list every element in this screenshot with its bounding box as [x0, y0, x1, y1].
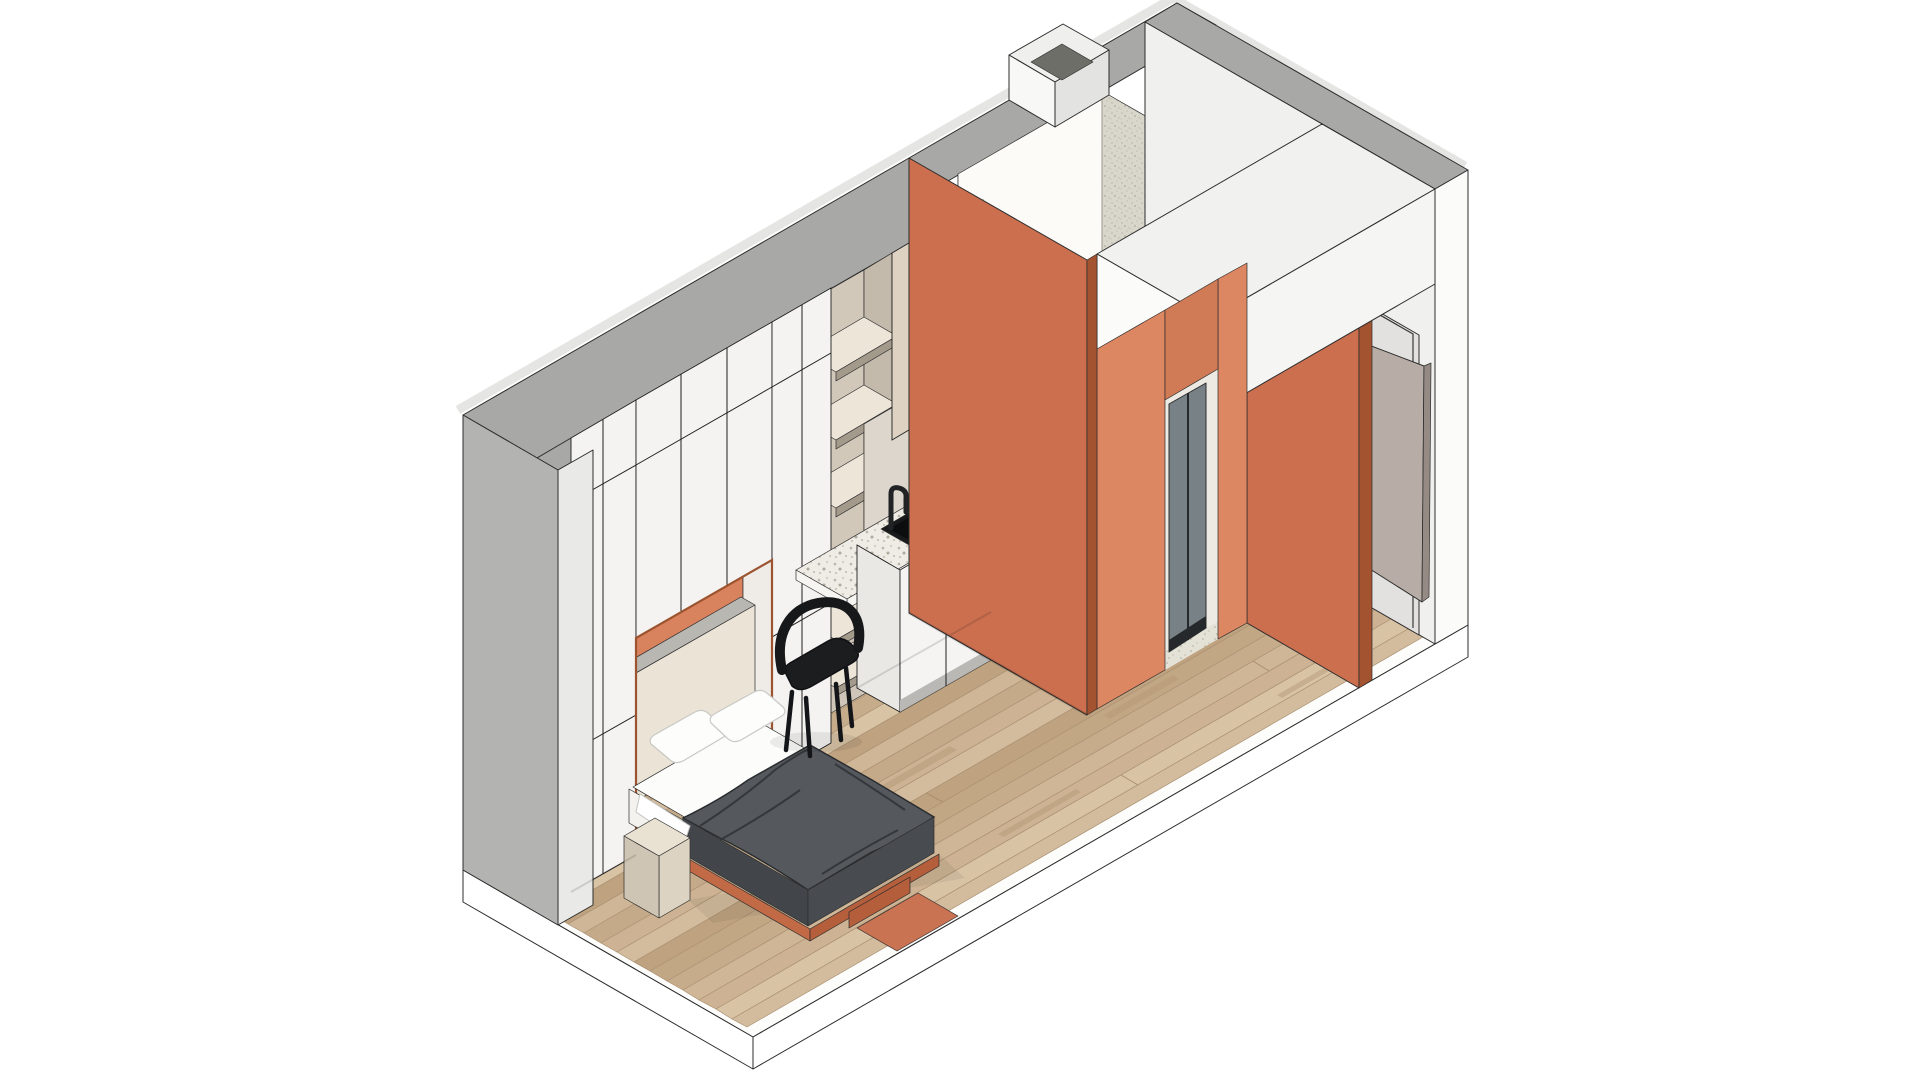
- pod-left-wall-edge: [1087, 254, 1097, 715]
- chair-shadow: [770, 732, 862, 752]
- left-wall-cut-face: [558, 450, 593, 925]
- apartment-rendering-canvas: [0, 0, 1920, 1080]
- nightstand: [624, 818, 690, 918]
- right-wall-front-sliver: [1435, 170, 1468, 644]
- left-wall: [463, 415, 593, 925]
- left-wall-outer-face: [463, 415, 558, 925]
- pod-front-wall-left: [1097, 310, 1165, 709]
- isometric-apartment-rendering: [0, 0, 1920, 1080]
- corridor-wall-edge: [1359, 320, 1372, 688]
- pod-front-wall-right: [1218, 263, 1247, 639]
